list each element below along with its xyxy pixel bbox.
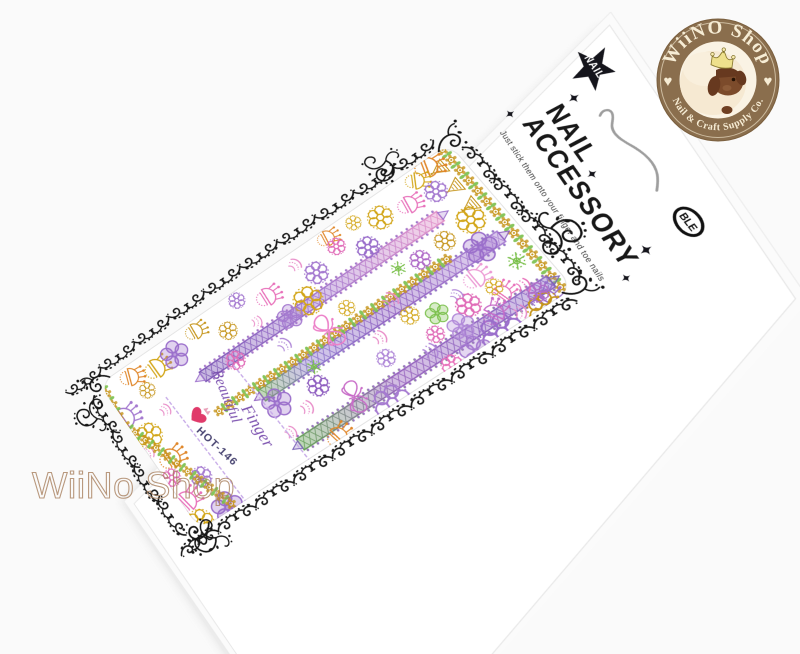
svg-text:♥: ♥ [664,73,673,90]
svg-text:♥: ♥ [764,73,773,90]
svg-text:HOT-146: HOT-146 [194,426,240,469]
svg-text:Beautiful: Beautiful [208,368,245,426]
